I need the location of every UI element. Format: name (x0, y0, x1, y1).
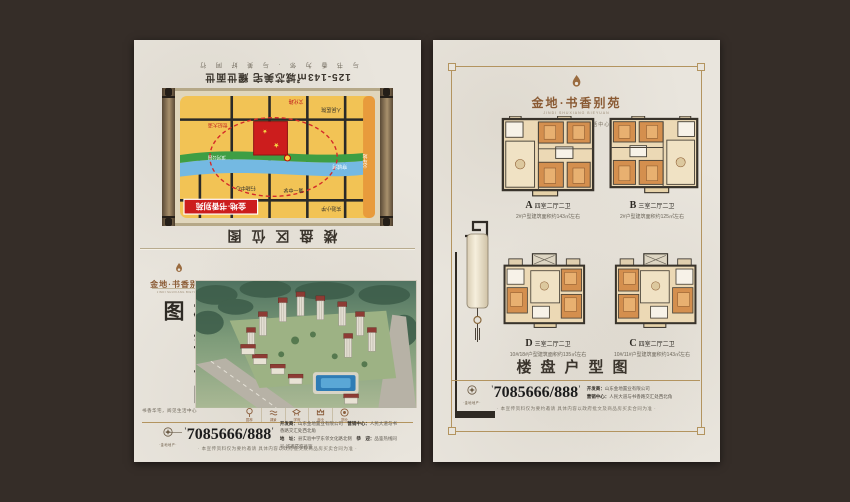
flyer-front-back-page: 楼盘区位图 ★ ★ (134, 40, 421, 462)
location-map-svg: ★ ★ 金地·书香别苑 实验小学 第一中学 行政中心 人民医院 世纪大道 文化路 (180, 96, 375, 218)
scroll-knob (165, 218, 172, 226)
disclaimer: · 本宣传资料仅为要约邀请 具体内容以政府批文及商品房买卖合同为准 · (134, 446, 421, 452)
back-cover-section: 楼盘区位图 ★ ★ (134, 40, 421, 248)
scroll-graphic: ★ ★ 金地·书香别苑 实验小学 第一中学 行政中心 人民医院 世纪大道 文化路 (162, 88, 393, 226)
floorplan-d: D三室二厅二卫 10#/18#户型建筑面积约135㎡左右 (495, 252, 601, 358)
map-river-label: 穿城河 (332, 163, 347, 170)
info-line: 开发商：山东金地置业有限公司 (587, 385, 673, 393)
front-tagline: 书香华宅，阅见生活中心 (142, 408, 200, 414)
map-label: 行政中心 (236, 185, 256, 192)
back-slogan: 与 书 香 为 邻 · 与 美 好 同 行 (134, 61, 421, 70)
flame-icon (174, 262, 184, 274)
lake-icon (269, 408, 278, 417)
floorplan-c-drawing (606, 252, 698, 335)
lamp-decoration (461, 216, 495, 353)
scroll-knob (383, 218, 390, 226)
map-road-label: 世纪大道 (208, 122, 228, 129)
disclaimer: · 本宣传资料仅为要约邀请 具体内容以政府批文及商品房买卖合同为准 · (433, 406, 720, 412)
frame-corner (448, 63, 456, 71)
star-icon: ★ (273, 141, 279, 149)
frame-accent-bar (455, 411, 495, 418)
fold-divider (140, 248, 415, 249)
aerial-render-svg (196, 281, 416, 408)
location-map-caption: 楼盘区位图 (134, 226, 421, 246)
scroll-handle-right (162, 88, 175, 226)
footer: ·金地地产· 7085666/888 开发商：山东金地置业有限公司 营销中心：人… (158, 426, 398, 444)
info-line: 营销中心：人民大道与书香路交汇处西北角 (587, 393, 673, 401)
brand-name: 金地·书香别苑 (433, 94, 720, 111)
emblem-icon (467, 385, 477, 395)
footer-divider (451, 380, 700, 381)
emblem-icon (163, 427, 173, 437)
floorplan-a: A四室二厅二卫 2#户型建筑面积约143㎡左右 (495, 116, 601, 220)
frame-accent-line (455, 252, 457, 418)
developer-info: 开发商：山东金地置业有限公司 营销中心：人民大道与书香路交汇处西北角 (587, 385, 673, 400)
floorplan-title: 楼盘户型图 (433, 356, 720, 377)
info-line: 开发商：山东金地置业有限公司 营销中心：人民大道与书香路交汇处西北角 (280, 420, 398, 435)
aerial-render (195, 280, 417, 408)
back-headline: 125-143㎡城芯美宅 耀世面世 (134, 71, 421, 86)
crown-icon (316, 408, 325, 417)
scroll-handle-left (380, 88, 393, 226)
map-station-label: 火车站 (363, 153, 369, 169)
footer: ·金地地产· 7085666/888 开发商：山东金地置业有限公司 营销中心：人… (459, 384, 697, 402)
school-icon (292, 408, 301, 417)
brand-name-en: JINDI SHUXIANG BIEYUAN (433, 111, 720, 115)
plan-label: A四室二厅二卫 (495, 200, 601, 211)
flame-icon (570, 74, 583, 89)
frame-corner (697, 63, 705, 71)
lamp-icon (461, 216, 495, 348)
plan-area: 2#户型建筑面积约125㎡左右 (599, 213, 705, 220)
floorplan-b: B三室二厅二卫 2#户型建筑面积约125㎡左右 (599, 116, 705, 220)
emblem-caption: ·金地地产· (459, 400, 485, 405)
frame-corner (448, 427, 456, 435)
tree-icon (245, 408, 254, 417)
floorplan-b-drawing (604, 116, 700, 197)
scroll-knob (165, 88, 172, 96)
location-map: ★ ★ 金地·书香别苑 实验小学 第一中学 行政中心 人民医院 世纪大道 文化路 (175, 88, 380, 226)
map-road-label: 文化路 (288, 98, 303, 105)
plan-label: B三室二厅二卫 (599, 200, 705, 211)
seal-icon (340, 408, 349, 417)
floorplan-c: C四室二厅二卫 10#/11#户型建筑面积约143㎡左右 (599, 252, 705, 358)
floorplan-page: 金地·书香别苑 JINDI SHUXIANG BIEYUAN 书香华宅 · 阅见… (433, 40, 720, 462)
frame-corner (697, 427, 705, 435)
phone-number: 7085666/888 (184, 426, 274, 444)
brand-emblem: ·金地地产· (158, 424, 178, 447)
scroll-knob (383, 88, 390, 96)
floorplan-a-drawing (500, 116, 596, 197)
plan-label: C四室二厅二卫 (599, 338, 705, 349)
floorplan-d-drawing (502, 252, 594, 335)
plan-label: D三室二厅二卫 (495, 338, 601, 349)
map-label: 第一中学 (283, 186, 303, 193)
map-label: 人民医院 (321, 106, 341, 113)
plan-area: 2#户型建筑面积约143㎡左右 (495, 213, 601, 220)
brand-emblem: ·金地地产· (459, 382, 485, 405)
star-icon: ★ (262, 127, 267, 134)
map-label: 实验小学 (321, 205, 341, 212)
map-park-label: 滨河公园 (207, 154, 225, 161)
amenity-item: 园林 (238, 408, 262, 423)
map-project-label: 金地·书香别苑 (196, 201, 247, 211)
phone-number: 7085666/888 (491, 384, 581, 402)
